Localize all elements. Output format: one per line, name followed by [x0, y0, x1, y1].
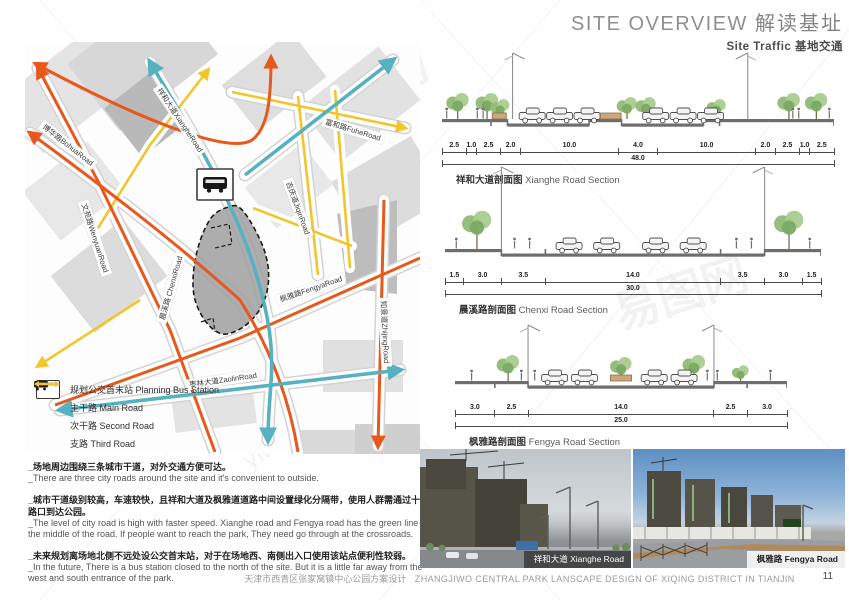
dimension-segment: 2.0: [501, 141, 521, 152]
section-fengya: 3.02.514.02.53.0 25.0 枫雅路剖面图 Fengya Road…: [455, 318, 787, 448]
chenxi-section-drawing: [445, 160, 821, 264]
note-zh: _场地周边围绕三条城市干道，对外交通方便可达。: [28, 461, 430, 473]
chenxi-section-caption: 晨溪路剖面图 Chenxi Road Section: [459, 302, 821, 316]
footer-title-en: ZHANGJIWO CENTRAL PARK LANSCAPE DESIGN O…: [415, 574, 795, 584]
photo-xianghe-road: 祥和大道 Xianghe Road: [420, 449, 631, 568]
page-title-zh: 解读基址: [755, 13, 843, 35]
legend-label: 规划公交首末站 Planning Bus Station: [70, 383, 219, 396]
page-title: SITE OVERVIEW 解读基址: [571, 7, 843, 36]
dimension-segment: 2.5: [495, 403, 528, 414]
dimension-segment: 10.0: [520, 141, 618, 152]
dimension-segment: 14.0: [545, 271, 720, 282]
dimension-segment: 10.0: [658, 141, 756, 152]
caption-zh: 枫雅路剖面图: [469, 437, 526, 448]
dimension-segment: 1.5: [802, 271, 821, 282]
page-number: 11: [823, 571, 833, 582]
dimension-total: 30.0: [445, 284, 821, 294]
legend-label: 主干路 Main Road: [70, 401, 143, 414]
dimension-segment: 3.5: [501, 271, 545, 282]
dimension-segment: 4.0: [618, 141, 657, 152]
dimension-segment: 2.5: [476, 141, 501, 152]
bus-station-icon: [197, 169, 233, 200]
dimension-segment: 2.5: [775, 141, 800, 152]
note-2: _城市干道级别较高，车速较快，且祥和大道及枫雅道道路中间设置绿化分隔带，使用人群…: [28, 494, 430, 541]
note-1: _场地周边围绕三条城市干道，对外交通方便可达。 _There are three…: [28, 461, 430, 485]
note-en: _There are three city roads around the s…: [28, 473, 430, 485]
note-zh: _城市干道级别较高，车速较快，且祥和大道及枫雅道道路中间设置绿化分隔带，使用人群…: [28, 494, 430, 518]
map-legend: 规划公交首末站 Planning Bus Station 主干路 Main Ro…: [33, 380, 219, 452]
chenxi-total-row: 30.0: [445, 284, 821, 295]
page-title-en: SITE OVERVIEW: [571, 13, 748, 35]
dimension-segment: 3.0: [747, 403, 787, 414]
section-chenxi: 1.53.03.514.03.53.01.5 30.0 晨溪路剖面图 Chenx…: [445, 160, 821, 316]
note-zh: _未来规划离场地北侧不远处设公交首末站，对于在场地西、南侧出入口使用该站点便利性…: [28, 550, 430, 562]
legend-item-second-road: 次干路 Second Road: [33, 416, 219, 434]
dimension-segment: 2.5: [442, 141, 467, 152]
xianghe-section-drawing: [442, 46, 834, 134]
dimension-segment: 2.5: [809, 141, 834, 152]
footer: 天津市西青区张家窝镇中心公园方案设计 ZHANGJIWO CENTRAL PAR…: [235, 572, 804, 585]
page-header: SITE OVERVIEW 解读基址 Site Traffic 基地交通: [571, 7, 843, 54]
dimension-segment: 3.0: [455, 403, 495, 414]
dimension-segment: 1.5: [445, 271, 464, 282]
caption-en: Fengya Road Section: [529, 437, 620, 448]
page-subtitle: Site Traffic 基地交通: [571, 38, 843, 54]
caption-zh: 晨溪路剖面图: [459, 305, 516, 316]
caption-en: Chenxi Road Section: [519, 305, 608, 316]
fengya-section-caption: 枫雅路剖面图 Fengya Road Section: [469, 434, 787, 448]
legend-item-main-road: 主干路 Main Road: [33, 398, 219, 416]
page: 易图网 易图网 易图网 yitu.cn 易图网 SITE OVERVIEW 解读…: [0, 0, 849, 600]
footer-title-zh: 天津市西青区张家窝镇中心公园方案设计: [244, 574, 406, 584]
page-subtitle-zh: 基地交通: [795, 41, 843, 53]
photo-fengya-road: 枫雅路 Fengya Road: [633, 449, 845, 568]
legend-label: 支路 Third Road: [70, 437, 135, 450]
dimension-segment: 14.0: [528, 403, 714, 414]
fengya-dimension-row: 3.02.514.02.53.0: [455, 403, 787, 415]
dimension-segment: 3.0: [765, 271, 803, 282]
photo-caption: 祥和大道 Xianghe Road: [524, 551, 631, 568]
note-en: _The level of city road is high with fas…: [28, 518, 430, 541]
dimension-segment: 3.5: [721, 271, 765, 282]
xianghe-dimension-row: 2.51.02.52.010.04.010.02.02.51.02.5: [442, 141, 834, 153]
photo-caption: 枫雅路 Fengya Road: [747, 551, 845, 568]
legend-item-third-road: 支路 Third Road: [33, 434, 219, 452]
dimension-total: 25.0: [455, 416, 787, 426]
dimension-segment: 3.0: [464, 271, 502, 282]
site-traffic-map: 博华路BohuaRoad 文苑路WenyuanRoad 祥和大道XiangheR…: [25, 42, 420, 454]
dimension-segment: 2.5: [714, 403, 747, 414]
page-subtitle-en: Site Traffic: [726, 41, 791, 53]
fengya-total-row: 25.0: [455, 416, 787, 427]
legend-label: 次干路 Second Road: [70, 419, 154, 432]
fengya-section-drawing: [455, 318, 787, 396]
chenxi-dimension-row: 1.53.03.514.03.53.01.5: [445, 271, 821, 283]
dimension-segment: 2.0: [756, 141, 776, 152]
